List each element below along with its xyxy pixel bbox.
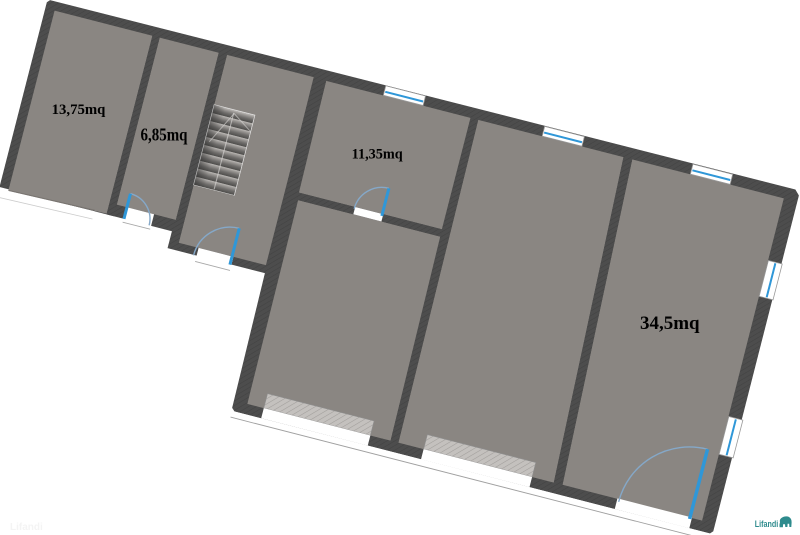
svg-text:6,85mq: 6,85mq [141,124,188,144]
svg-text:13,75mq: 13,75mq [52,102,106,118]
svg-text:34,5mq: 34,5mq [640,313,700,334]
svg-text:Lifandi: Lifandi [755,519,779,529]
svg-text:11,35mq: 11,35mq [352,147,403,163]
svg-text:Lifandi: Lifandi [10,522,43,533]
